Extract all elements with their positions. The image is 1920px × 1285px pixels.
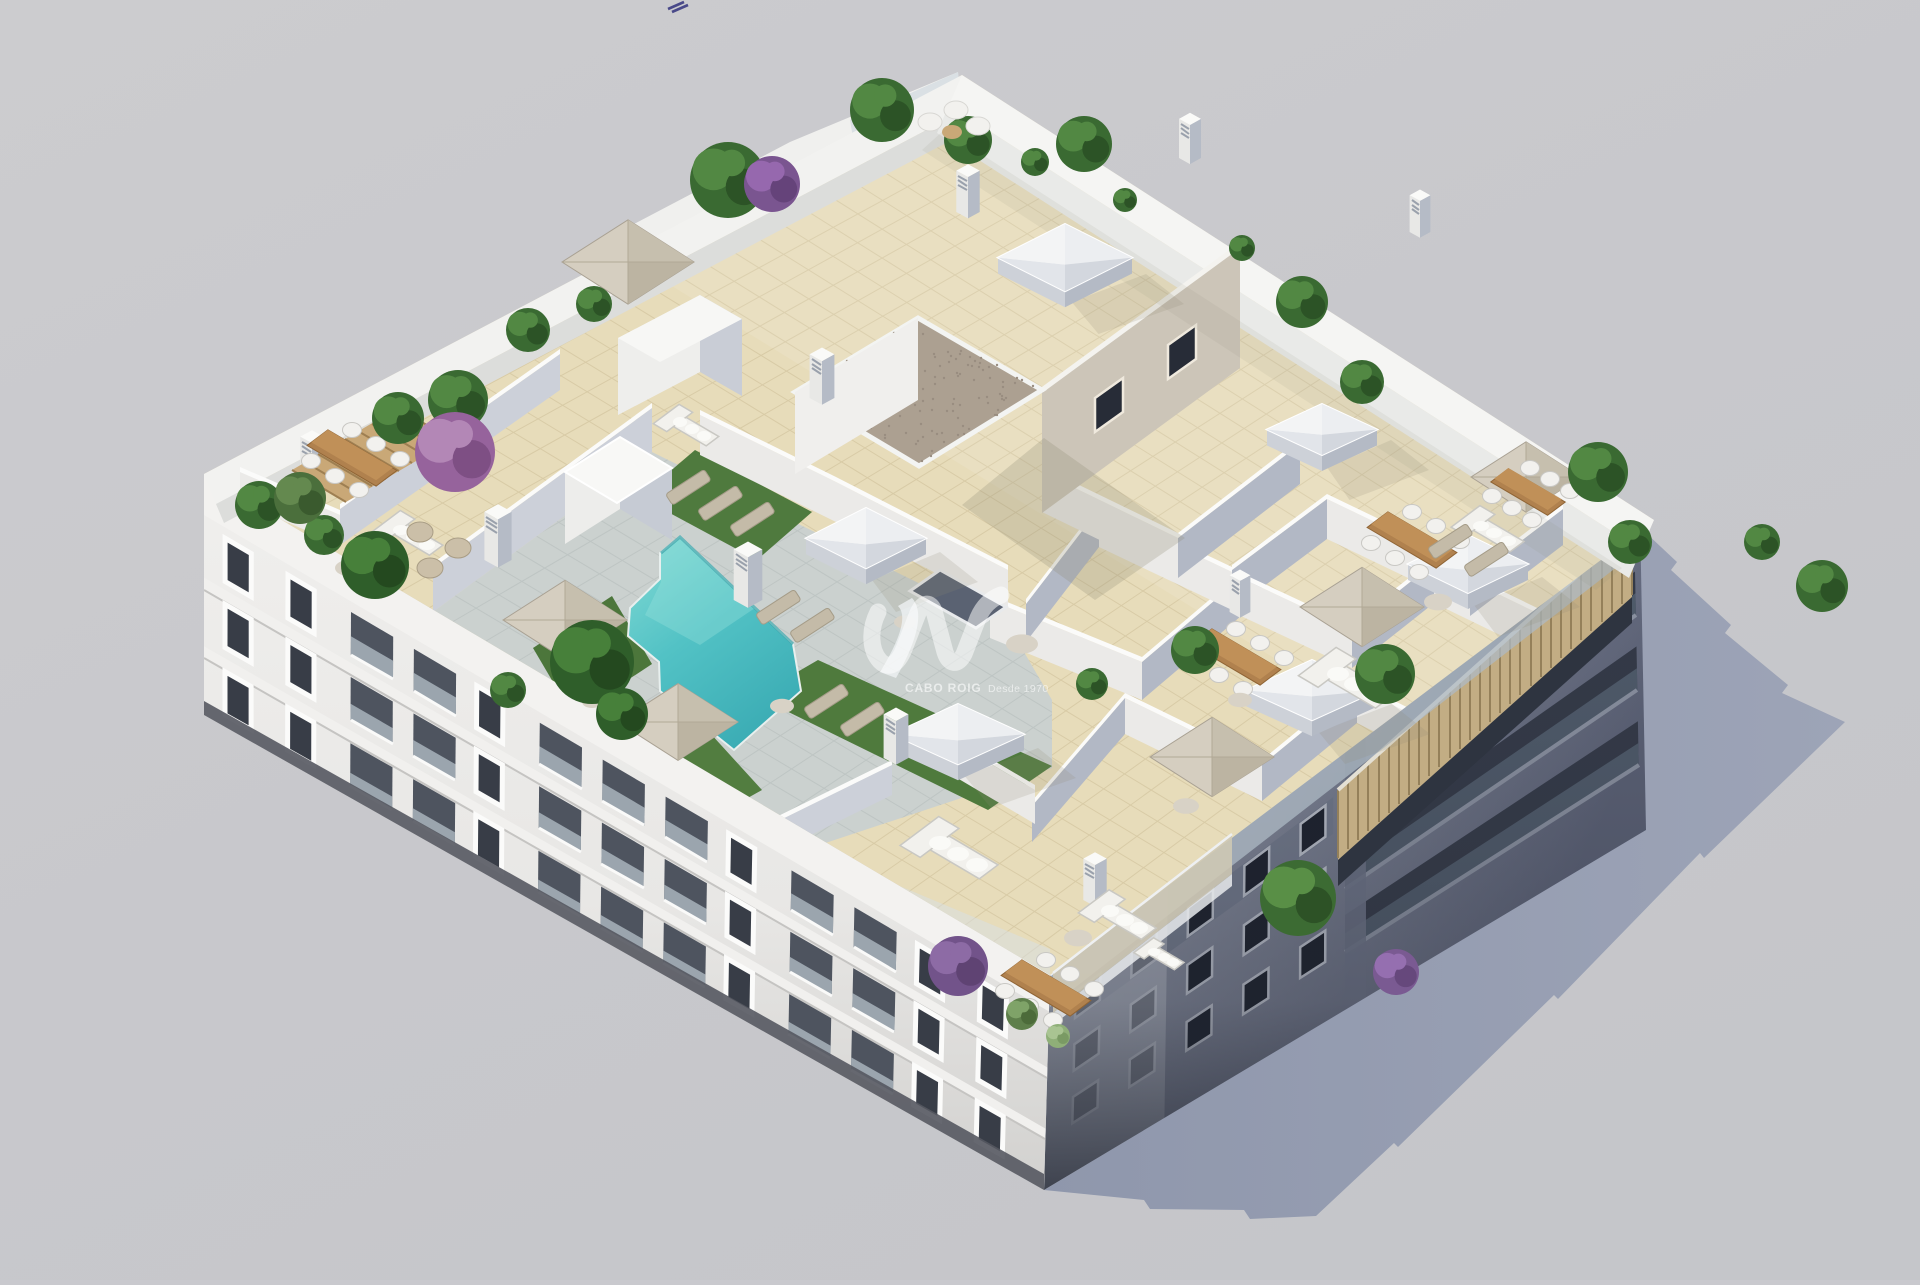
- svg-text:Desde 1970: Desde 1970: [988, 683, 1049, 695]
- svg-text:CABO ROIG: CABO ROIG: [905, 681, 982, 695]
